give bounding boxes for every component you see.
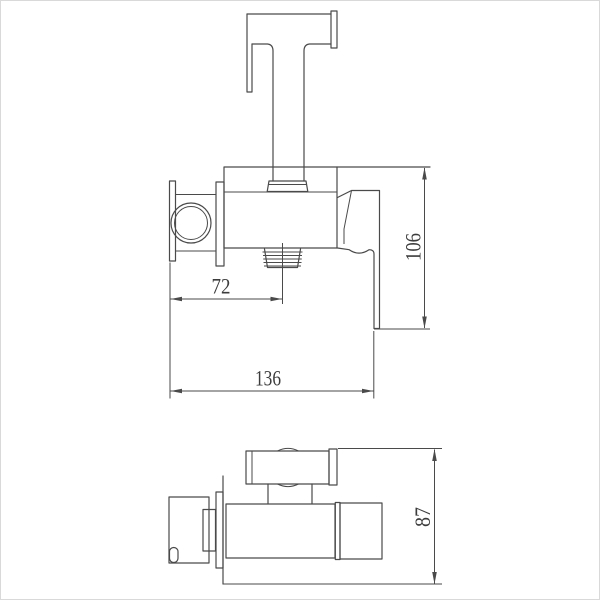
top-view (169, 448, 382, 584)
arrowhead-72-left (171, 297, 183, 302)
dimension-136: 136 (171, 331, 374, 399)
arrowhead-87-top (432, 449, 437, 461)
valve-body-top (226, 503, 382, 560)
holder-cup-outline (267, 181, 308, 192)
bidet-mixer-drawing: 72 136 106 87 (1, 1, 600, 600)
arrowhead-87-bottom (432, 572, 437, 584)
dimension-87: 87 (224, 449, 443, 585)
dim-label-87: 87 (410, 507, 435, 527)
body-separator-band (335, 503, 340, 560)
sprayer-head-bottom-left (252, 44, 273, 181)
body-rect-top (226, 504, 335, 558)
inlet-union (170, 181, 217, 261)
dim-label-72: 72 (212, 274, 231, 299)
arrowhead-136-right (362, 389, 374, 394)
lever-rect-top (340, 503, 382, 559)
dim-label-136: 136 (255, 366, 281, 391)
head-rect (246, 451, 329, 484)
technical-drawing-canvas: 72 136 106 87 (0, 0, 600, 600)
sprayer-holder-cup (267, 181, 308, 192)
head-end-cap-top (329, 449, 337, 485)
arrowhead-106-bottom (422, 317, 427, 329)
inlet-union-top (169, 497, 216, 563)
inlet-circle-inner (175, 207, 208, 240)
sprayer-head (247, 11, 337, 181)
dim-label-106: 106 (401, 233, 426, 261)
arrowhead-136-left (171, 389, 183, 394)
inlet-circle-outer (171, 203, 211, 243)
sprayer-head-end-cap (331, 11, 337, 48)
valve-body (224, 167, 430, 248)
wall-plate-side (216, 182, 224, 266)
lever-handle (338, 191, 380, 329)
arrowhead-106-top (422, 168, 427, 180)
dimension-106: 106 (374, 168, 430, 330)
body-left-and-top (224, 167, 430, 248)
lever-outline (338, 191, 380, 329)
lever-stem-edge (344, 191, 352, 245)
union-capsule (170, 548, 179, 563)
arrowhead-72-right (271, 297, 283, 302)
wall-plate-top (216, 492, 223, 568)
threaded-outlet (263, 243, 303, 304)
side-view (170, 11, 431, 329)
sprayer-face-plate (247, 14, 252, 92)
sprayer-head-bottom-right (304, 44, 331, 181)
sprayer-head-top (246, 448, 337, 503)
